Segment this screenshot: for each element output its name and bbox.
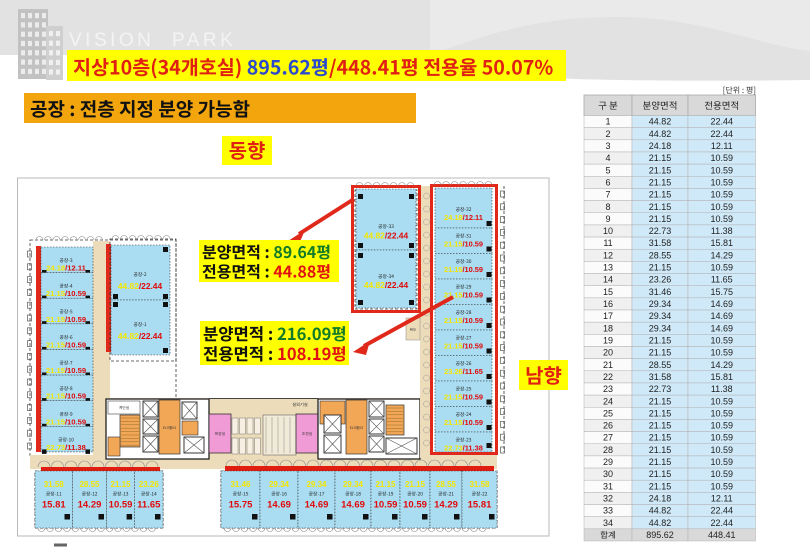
svg-text:31.58: 31.58 [649, 372, 672, 382]
svg-text:10.59: 10.59 [710, 348, 733, 358]
svg-text:14.69: 14.69 [305, 500, 329, 511]
svg-text:22.44: 22.44 [710, 117, 733, 127]
svg-text:22.73: 22.73 [649, 384, 672, 394]
svg-text:10.59: 10.59 [710, 190, 733, 200]
svg-text:33: 33 [603, 506, 613, 516]
svg-text:21.15/10.59: 21.15/10.59 [46, 315, 86, 324]
svg-text:6: 6 [605, 177, 610, 187]
svg-text:24: 24 [603, 396, 613, 406]
svg-text:29.34: 29.34 [306, 480, 327, 489]
svg-text:31.46: 31.46 [230, 480, 251, 489]
svg-text:14.69: 14.69 [267, 500, 291, 511]
svg-text:28.55: 28.55 [436, 480, 457, 489]
svg-text:14.69: 14.69 [710, 311, 733, 321]
svg-text:14: 14 [603, 275, 613, 285]
svg-text:21.15/10.59: 21.15/10.59 [46, 340, 86, 349]
svg-text:10.59: 10.59 [710, 457, 733, 467]
svg-text:21.15: 21.15 [649, 336, 672, 346]
svg-text:28.55: 28.55 [79, 480, 100, 489]
svg-text:448.41: 448.41 [708, 530, 736, 540]
svg-text:5: 5 [605, 165, 610, 175]
svg-text:10.59: 10.59 [710, 408, 733, 418]
svg-text:895.62: 895.62 [646, 530, 674, 540]
svg-text:44.82/22.44: 44.82/22.44 [118, 281, 163, 291]
svg-text:21.15: 21.15 [649, 396, 672, 406]
svg-text:21.15: 21.15 [649, 457, 672, 467]
svg-text:22.44: 22.44 [710, 506, 733, 516]
svg-text:14.29: 14.29 [710, 360, 733, 370]
svg-text:10.59: 10.59 [710, 165, 733, 175]
svg-text:VISION PARK: VISION PARK [69, 30, 236, 51]
svg-text:23.26: 23.26 [649, 275, 672, 285]
svg-text:9: 9 [605, 214, 610, 224]
svg-text:21.15/10.59: 21.15/10.59 [444, 342, 483, 351]
svg-text:30: 30 [603, 469, 613, 479]
svg-text:21.15: 21.15 [649, 190, 672, 200]
svg-text:22.44: 22.44 [710, 518, 733, 528]
svg-text:21.15: 21.15 [649, 177, 672, 187]
svg-text:15.81: 15.81 [468, 500, 492, 511]
svg-text:14.29: 14.29 [78, 500, 102, 511]
svg-text:11.65: 11.65 [711, 275, 733, 285]
svg-text:21.15: 21.15 [649, 153, 672, 163]
svg-text:14.29: 14.29 [710, 250, 733, 260]
svg-text:2: 2 [605, 129, 610, 139]
svg-text:21.15: 21.15 [649, 469, 672, 479]
svg-text:23: 23 [603, 384, 613, 394]
svg-text:12: 12 [603, 250, 613, 260]
svg-text:27: 27 [603, 433, 613, 443]
svg-text:11.65: 11.65 [137, 500, 161, 511]
svg-text:21.15: 21.15 [375, 480, 396, 489]
svg-text:7: 7 [605, 190, 610, 200]
svg-text:1: 1 [605, 117, 610, 127]
svg-text:21.15: 21.15 [649, 445, 672, 455]
svg-text:14.69: 14.69 [710, 323, 733, 333]
svg-text:21.15: 21.15 [649, 214, 672, 224]
svg-text:10.59: 10.59 [710, 421, 733, 431]
svg-text:26: 26 [603, 421, 613, 431]
svg-text:15.75: 15.75 [710, 287, 733, 297]
svg-text:29.34: 29.34 [649, 323, 672, 333]
svg-text:29.34: 29.34 [649, 311, 672, 321]
svg-text:3: 3 [605, 141, 610, 151]
svg-text:10.59: 10.59 [374, 500, 398, 511]
svg-text:12.11: 12.11 [711, 494, 733, 504]
svg-text:31.46: 31.46 [649, 287, 672, 297]
svg-text:10: 10 [603, 226, 613, 236]
svg-text:29.34: 29.34 [343, 480, 364, 489]
svg-text:18: 18 [603, 323, 613, 333]
svg-text:10.59: 10.59 [109, 500, 133, 511]
svg-text:44.82/22.44: 44.82/22.44 [118, 331, 163, 341]
svg-text:21: 21 [603, 360, 613, 370]
svg-text:24.18: 24.18 [649, 494, 672, 504]
svg-text:21.15: 21.15 [649, 165, 672, 175]
svg-text:10.59: 10.59 [710, 445, 733, 455]
svg-text:13: 13 [603, 263, 613, 273]
svg-text:31.58: 31.58 [649, 238, 672, 248]
svg-text:22: 22 [603, 372, 613, 382]
svg-text:15.75: 15.75 [229, 500, 253, 511]
svg-text:10.59: 10.59 [710, 263, 733, 273]
svg-text:21.15: 21.15 [405, 480, 426, 489]
svg-text:21.15/10.59: 21.15/10.59 [444, 393, 483, 402]
svg-text:44.82/22.44: 44.82/22.44 [364, 280, 409, 290]
svg-text:10.59: 10.59 [710, 153, 733, 163]
svg-text:10.59: 10.59 [710, 481, 733, 491]
svg-text:21.15: 21.15 [649, 263, 672, 273]
svg-text:24.18: 24.18 [649, 141, 672, 151]
svg-text:12.11: 12.11 [711, 141, 733, 151]
svg-text:11.38: 11.38 [711, 226, 733, 236]
svg-text:10.59: 10.59 [710, 214, 733, 224]
svg-text:10.59: 10.59 [403, 500, 427, 511]
svg-text:19: 19 [603, 336, 613, 346]
svg-text:22.73/11.38: 22.73/11.38 [46, 443, 86, 452]
svg-text:25: 25 [603, 408, 613, 418]
svg-text:23.26/11.65: 23.26/11.65 [444, 367, 483, 376]
svg-text:34: 34 [603, 518, 613, 528]
svg-text:24.18/12.11: 24.18/12.11 [46, 264, 86, 273]
svg-text:31.58: 31.58 [469, 480, 490, 489]
svg-text:11: 11 [603, 238, 612, 248]
svg-text:11.38: 11.38 [711, 384, 733, 394]
svg-text:21.15: 21.15 [649, 202, 672, 212]
svg-text:8: 8 [605, 202, 610, 212]
svg-text:15.81: 15.81 [42, 500, 66, 511]
svg-text:14.29: 14.29 [434, 500, 458, 511]
svg-text:16: 16 [603, 299, 613, 309]
svg-text:44.82/22.44: 44.82/22.44 [364, 231, 409, 241]
svg-text:29.34: 29.34 [269, 480, 290, 489]
svg-text:10.59: 10.59 [710, 433, 733, 443]
svg-text:44.82: 44.82 [649, 518, 672, 528]
svg-text:44.82: 44.82 [649, 506, 672, 516]
svg-text:29: 29 [603, 457, 613, 467]
svg-text:21.15/10.59: 21.15/10.59 [444, 240, 483, 249]
svg-text:21.15/10.59: 21.15/10.59 [444, 418, 483, 427]
svg-text:21.15/10.59: 21.15/10.59 [46, 417, 86, 426]
svg-text:21.15/10.59: 21.15/10.59 [444, 265, 483, 274]
svg-text:15: 15 [603, 287, 613, 297]
svg-text:15.81: 15.81 [710, 372, 733, 382]
svg-text:22.73: 22.73 [649, 226, 672, 236]
svg-text:20: 20 [603, 348, 613, 358]
svg-text:44.82: 44.82 [649, 117, 672, 127]
svg-text:23.26: 23.26 [139, 480, 160, 489]
svg-text:14.69: 14.69 [341, 500, 365, 511]
svg-text:4: 4 [605, 153, 610, 163]
svg-text:24.18/12.11: 24.18/12.11 [444, 213, 483, 222]
svg-text:21.15/10.59: 21.15/10.59 [444, 316, 483, 325]
svg-text:21.15/10.59: 21.15/10.59 [46, 366, 86, 375]
svg-text:44.82: 44.82 [649, 129, 672, 139]
svg-text:22.73/11.38: 22.73/11.38 [444, 444, 483, 453]
svg-text:14.69: 14.69 [710, 299, 733, 309]
svg-text:17: 17 [603, 311, 613, 321]
svg-text:10.59: 10.59 [710, 177, 733, 187]
svg-text:31.58: 31.58 [44, 480, 65, 489]
svg-text:15.81: 15.81 [710, 238, 733, 248]
svg-text:21.15: 21.15 [649, 481, 672, 491]
svg-text:28: 28 [603, 445, 613, 455]
svg-text:10.59: 10.59 [710, 202, 733, 212]
svg-text:10.59: 10.59 [710, 396, 733, 406]
svg-text:28.55: 28.55 [649, 250, 672, 260]
svg-text:32: 32 [603, 494, 613, 504]
svg-text:10.59: 10.59 [710, 469, 733, 479]
svg-text:21.15/10.59: 21.15/10.59 [46, 289, 86, 298]
svg-text:29.34: 29.34 [649, 299, 672, 309]
svg-text:28.55: 28.55 [649, 360, 672, 370]
svg-text:21.15: 21.15 [111, 480, 132, 489]
svg-text:21.15/10.59: 21.15/10.59 [46, 392, 86, 401]
svg-text:21.15: 21.15 [649, 348, 672, 358]
svg-text:31: 31 [603, 481, 613, 491]
svg-text:21.15: 21.15 [649, 408, 672, 418]
svg-text:21.15: 21.15 [649, 421, 672, 431]
svg-text:21.15: 21.15 [649, 433, 672, 443]
svg-text:10.59: 10.59 [710, 336, 733, 346]
svg-text:22.44: 22.44 [710, 129, 733, 139]
